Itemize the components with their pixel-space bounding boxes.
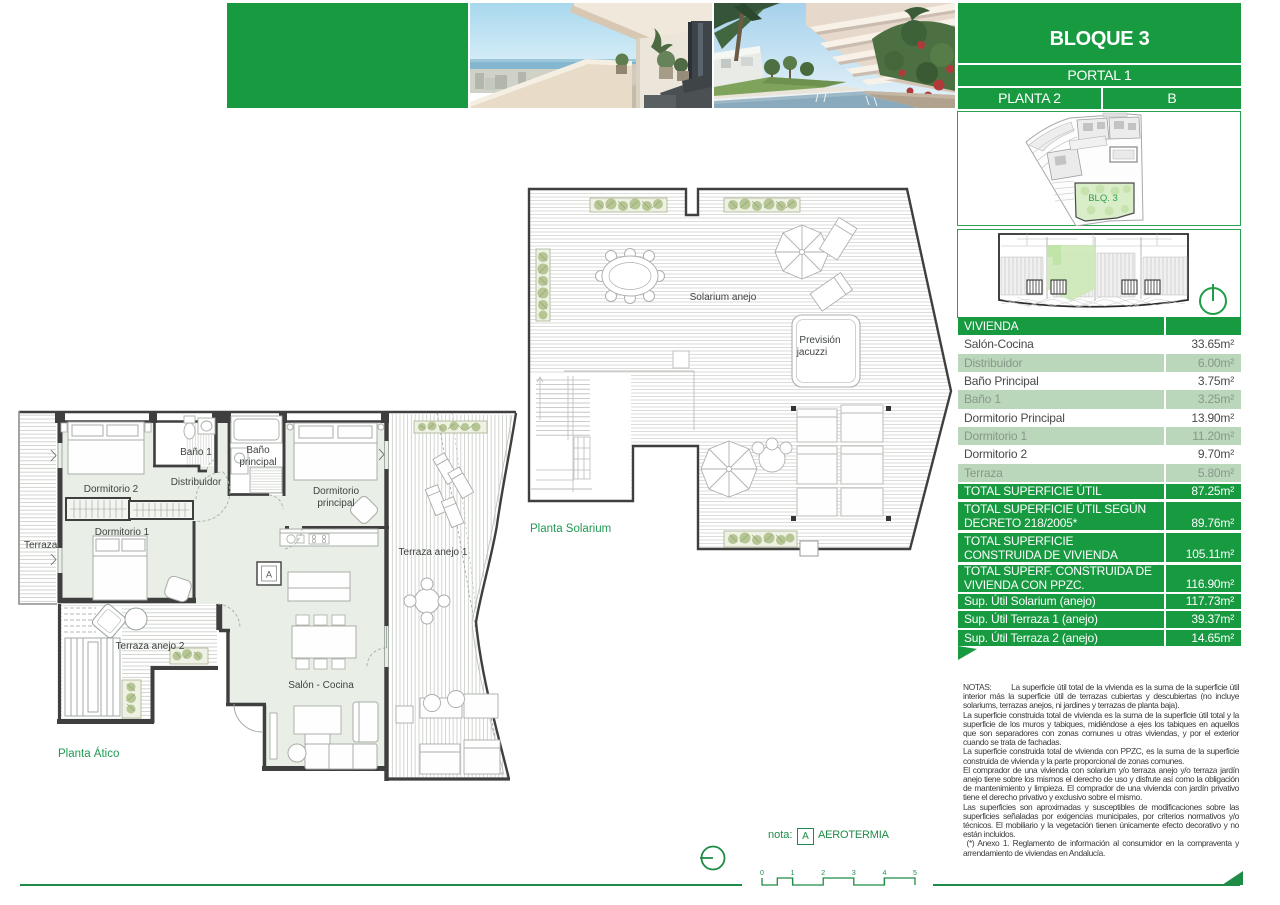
svg-text:Terraza: Terraza <box>24 540 58 551</box>
svg-text:0: 0 <box>760 870 764 877</box>
svg-text:Dormitorio 2: Dormitorio 2 <box>84 484 139 495</box>
svg-text:Planta Ático: Planta Ático <box>58 747 119 760</box>
svg-text:Solarium anejo: Solarium anejo <box>690 292 757 303</box>
svg-text:BLQ. 3: BLQ. 3 <box>1088 193 1118 204</box>
svg-text:jacuzzi: jacuzzi <box>796 347 828 358</box>
svg-text:Baño: Baño <box>246 445 270 456</box>
svg-text:2: 2 <box>821 870 825 877</box>
svg-text:5: 5 <box>913 870 917 877</box>
svg-text:Terraza anejo 1: Terraza anejo 1 <box>399 547 468 558</box>
svg-text:Previsión: Previsión <box>799 335 840 346</box>
svg-text:Terraza anejo 2: Terraza anejo 2 <box>116 641 185 652</box>
svg-text:Planta Solarium: Planta Solarium <box>530 523 611 535</box>
svg-text:3: 3 <box>852 870 856 877</box>
svg-text:A: A <box>266 570 272 580</box>
svg-text:Salón - Cocina: Salón - Cocina <box>288 680 354 691</box>
svg-text:1: 1 <box>791 870 795 877</box>
svg-text:Baño 1: Baño 1 <box>180 447 212 458</box>
svg-text:principal: principal <box>317 498 354 509</box>
svg-text:Distribuidor: Distribuidor <box>171 477 222 488</box>
svg-text:Dormitorio: Dormitorio <box>313 486 360 497</box>
svg-text:4: 4 <box>882 870 886 877</box>
svg-text:principal: principal <box>239 457 276 468</box>
svg-text:Dormitorio 1: Dormitorio 1 <box>95 527 150 538</box>
